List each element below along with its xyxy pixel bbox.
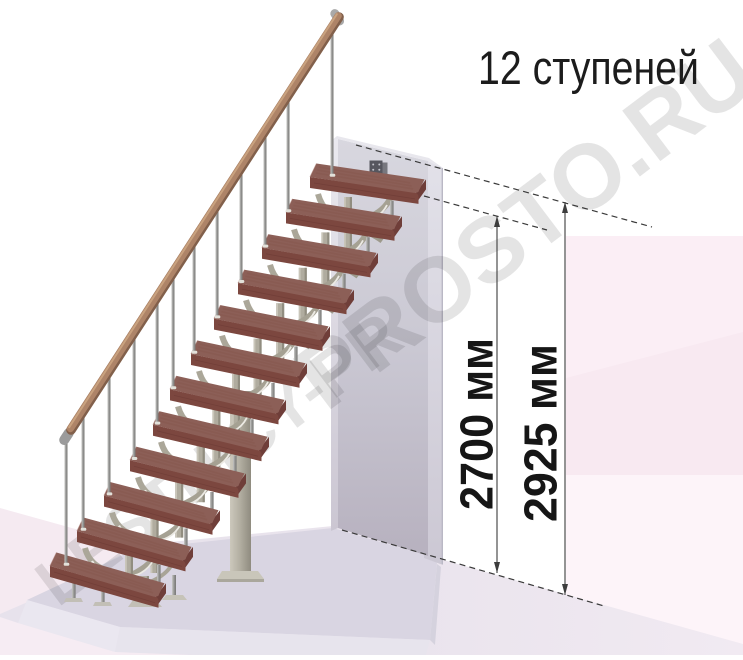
svg-text:2700 мм: 2700 мм — [451, 338, 503, 510]
svg-text:2925 мм: 2925 мм — [515, 344, 567, 522]
svg-text:12 ступеней: 12 ступеней — [478, 41, 699, 94]
